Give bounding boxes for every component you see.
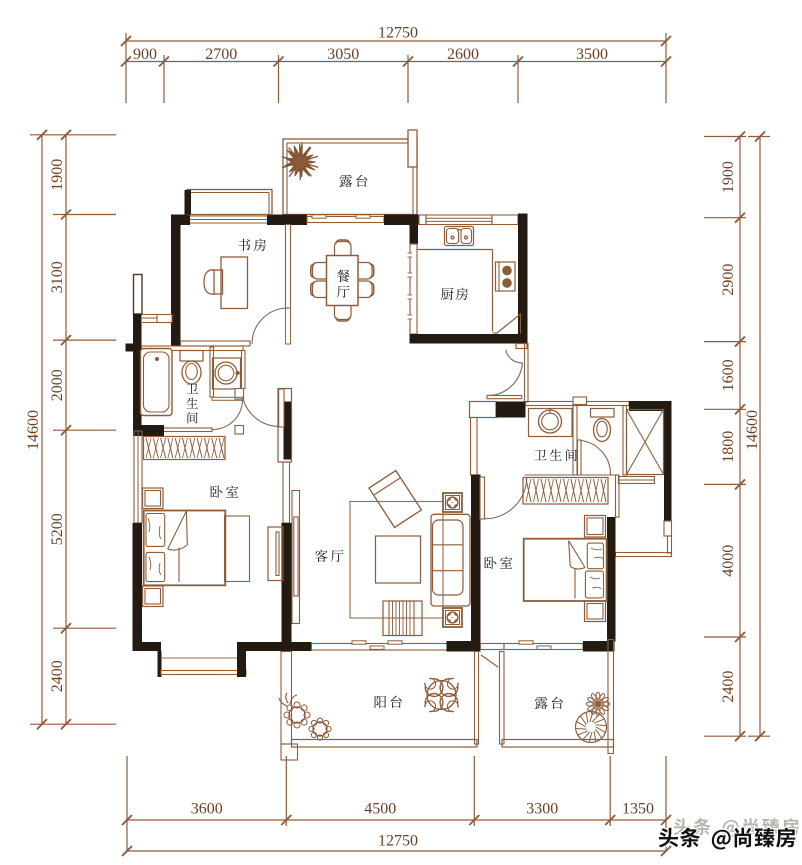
svg-text:3300: 3300: [526, 801, 558, 818]
svg-text:3600: 3600: [191, 801, 223, 818]
svg-text:4500: 4500: [364, 801, 396, 818]
svg-text:1800: 1800: [720, 431, 737, 463]
svg-text:1900: 1900: [720, 161, 737, 193]
svg-text:2000: 2000: [49, 369, 66, 401]
svg-text:1350: 1350: [622, 801, 654, 818]
svg-text:2600: 2600: [447, 46, 479, 63]
svg-text:1900: 1900: [49, 159, 66, 191]
svg-text:12750: 12750: [378, 25, 418, 42]
svg-text:14600: 14600: [25, 410, 42, 450]
svg-text:900: 900: [133, 46, 157, 63]
svg-text:5200: 5200: [49, 513, 66, 545]
svg-text:3050: 3050: [327, 46, 359, 63]
svg-text:12750: 12750: [378, 833, 418, 850]
svg-text:2400: 2400: [720, 671, 737, 703]
svg-text:4000: 4000: [720, 545, 737, 577]
svg-text:3100: 3100: [49, 261, 66, 293]
svg-text:2900: 2900: [720, 264, 737, 296]
svg-text:14600: 14600: [744, 410, 761, 450]
svg-text:2400: 2400: [49, 660, 66, 692]
svg-text:2700: 2700: [205, 46, 237, 63]
svg-text:1600: 1600: [720, 359, 737, 391]
svg-text:3500: 3500: [576, 46, 608, 63]
